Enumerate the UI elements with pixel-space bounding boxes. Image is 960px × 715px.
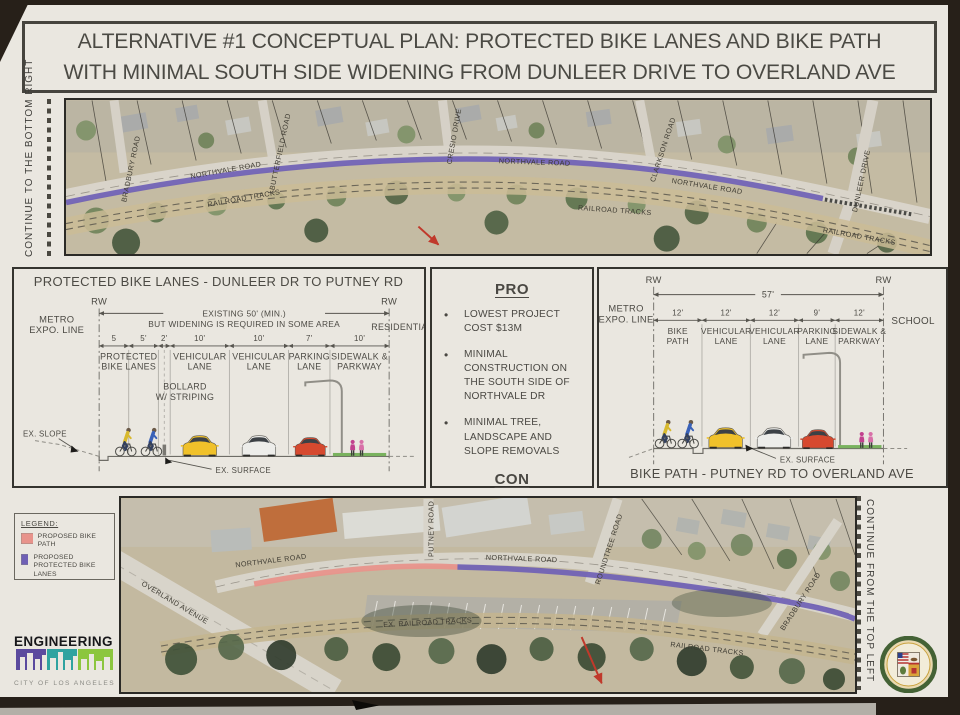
- svg-text:VEHICULAR: VEHICULAR: [749, 326, 800, 336]
- legend-label: PROPOSED BIKE PATH: [38, 533, 108, 549]
- section-title: BIKE PATH - PUTNEY RD TO OVERLAND AVE: [630, 466, 914, 481]
- svg-text:10': 10': [253, 334, 264, 343]
- ground-line: [654, 449, 884, 454]
- legend-swatch-purple: [21, 554, 28, 565]
- svg-text:LANE: LANE: [805, 336, 828, 346]
- svg-text:5: 5: [112, 334, 117, 343]
- top-aerial-map: BRADBURY ROAD NORTHVALE ROAD BUTTERFIELD…: [64, 98, 932, 256]
- car-yellow: [181, 436, 219, 457]
- cyclist-blue: [678, 420, 699, 448]
- pro-list: LOWEST PROJECT COST $13M MINIMAL CONSTRU…: [432, 308, 592, 459]
- pro-item: LOWEST PROJECT COST $13M: [464, 308, 584, 336]
- legend-label: PROPOSED PROTECTED BIKE LANES: [33, 554, 108, 578]
- svg-text:PROTECTED: PROTECTED: [100, 352, 157, 362]
- bollard-note-2: W/ STRIPING: [156, 392, 214, 402]
- span-note-1: EXISTING 50' (MIN.): [202, 308, 286, 318]
- context-right: SCHOOL: [891, 316, 935, 327]
- continue-bottom-right-label: CONTINUE TO THE BOTTOM RIGHT: [24, 99, 35, 257]
- left-cross-section-svg: PROTECTED BIKE LANES - DUNLEER DR TO PUT…: [14, 269, 424, 486]
- svg-text:LANE: LANE: [188, 362, 212, 372]
- context-left-2: EXPO. LINE: [599, 314, 654, 324]
- svg-text:LANE: LANE: [763, 336, 786, 346]
- match-line-left: [47, 99, 51, 256]
- legend-item-protected-lanes: PROPOSED PROTECTED BIKE LANES: [21, 554, 108, 578]
- section-protected-bike-lanes: PROTECTED BIKE LANES - DUNLEER DR TO PUT…: [12, 267, 426, 488]
- top-aerial-map-svg: BRADBURY ROAD NORTHVALE ROAD BUTTERFIELD…: [66, 100, 930, 254]
- match-line-right: [857, 496, 861, 690]
- svg-text:VEHICULAR: VEHICULAR: [701, 326, 752, 336]
- ground-line: [99, 456, 389, 460]
- dimension-labels: 12'12' 12'9' 12': [672, 308, 865, 317]
- cyclist-yellow: [655, 420, 676, 448]
- legend-item-bike-path: PROPOSED BIKE PATH: [21, 533, 108, 549]
- legend-swatch-pink: [21, 533, 33, 544]
- svg-text:LANE: LANE: [247, 362, 271, 372]
- road-label: PUTNEY ROAD: [426, 501, 435, 557]
- photo-of-poster: { "poster": { "title_line1": "ALTERNATIV…: [0, 0, 960, 715]
- context-right: RESIDENTIAL: [371, 322, 424, 332]
- lane-labels: BIKEPATH VEHICULARLANE VEHICULARLANE PAR…: [667, 326, 887, 346]
- svg-text:PARKING: PARKING: [797, 326, 836, 336]
- bollard: [163, 445, 167, 456]
- car-red: [800, 430, 835, 449]
- svg-text:2': 2': [161, 334, 168, 343]
- rw-left: RW: [91, 297, 107, 307]
- ex-slope-label: EX. SLOPE: [23, 430, 67, 439]
- engineering-logo: ENGINEERING CITY OF LOS ANGELES: [14, 634, 124, 687]
- svg-text:VEHICULAR: VEHICULAR: [173, 352, 226, 362]
- svg-text:5': 5': [140, 334, 147, 343]
- right-cross-section-svg: RW RW METRO EXPO. LINE SCHOOL 57' 12'12'…: [599, 269, 946, 486]
- svg-text:PARKWAY: PARKWAY: [838, 336, 881, 346]
- rw-right: RW: [381, 297, 397, 307]
- context-left-1: METRO: [39, 314, 74, 324]
- skyline-graphic: [14, 649, 116, 674]
- city-of-la-text: CITY OF LOS ANGELES: [14, 680, 124, 687]
- continue-top-left-label: CONTINUE FROM THE TOP LEFT: [864, 499, 875, 699]
- svg-text:9': 9': [814, 308, 821, 317]
- svg-text:10': 10': [354, 334, 365, 343]
- svg-text:PATH: PATH: [667, 336, 689, 346]
- context-left-2: EXPO. LINE: [29, 325, 84, 335]
- svg-text:BIKE: BIKE: [668, 326, 688, 336]
- legend-heading: LEGEND:: [21, 519, 108, 528]
- svg-text:SIDEWALK &: SIDEWALK &: [832, 326, 886, 336]
- parkway-grass: [333, 453, 386, 456]
- rw-right: RW: [875, 275, 891, 285]
- svg-text:PARKING: PARKING: [289, 352, 330, 362]
- car-white: [240, 436, 278, 457]
- total-width-label: 57': [762, 290, 774, 300]
- title-line-2: WITH MINIMAL SOUTH SIDE WIDENING FROM DU…: [32, 57, 927, 88]
- section-title: PROTECTED BIKE LANES - DUNLEER DR TO PUT…: [34, 274, 403, 289]
- rw-left: RW: [646, 275, 662, 285]
- svg-text:BIKE LANES: BIKE LANES: [101, 362, 156, 372]
- span-note-2: BUT WIDENING IS REQUIRED IN SOME AREA: [148, 319, 340, 329]
- svg-text:PARKWAY: PARKWAY: [337, 362, 382, 372]
- bottom-aerial-map-svg: OVERLAND AVENUE NORTHVALE ROAD PUTNEY RO…: [121, 498, 855, 692]
- svg-text:7': 7': [306, 334, 313, 343]
- car-yellow: [707, 428, 745, 449]
- title-line-1: ALTERNATIVE #1 CONCEPTUAL PLAN: PROTECTE…: [32, 26, 927, 57]
- title-box: ALTERNATIVE #1 CONCEPTUAL PLAN: PROTECTE…: [22, 21, 937, 93]
- parkway-grass: [838, 445, 881, 448]
- next-sheet-edge: [0, 702, 876, 715]
- svg-text:LANE: LANE: [715, 336, 738, 346]
- con-heading: CON: [432, 471, 592, 488]
- dimension-labels: 55' 2'10' 10'7' 10': [112, 334, 366, 343]
- ex-surface-label: EX. SURFACE: [216, 466, 271, 475]
- legend-box: LEGEND: PROPOSED BIKE PATH PROPOSED PROT…: [14, 513, 115, 580]
- pro-heading: PRO: [432, 281, 592, 298]
- seal-shield: [898, 653, 920, 677]
- svg-text:SIDEWALK &: SIDEWALK &: [331, 352, 388, 362]
- ex-surface-label: EX. SURFACE: [780, 455, 835, 464]
- svg-text:LANE: LANE: [297, 362, 321, 372]
- pro-item: MINIMAL TREE, LANDSCAPE AND SLOPE REMOVA…: [464, 416, 584, 458]
- svg-text:12': 12': [854, 308, 865, 317]
- pro-item: MINIMAL CONSTRUCTION ON THE SOUTH SIDE O…: [464, 348, 584, 404]
- bottom-aerial-map: OVERLAND AVENUE NORTHVALE ROAD PUTNEY RO…: [119, 496, 857, 694]
- svg-text:12': 12': [672, 308, 683, 317]
- la-city-seal: [880, 636, 937, 693]
- pros-cons-panel: PRO LOWEST PROJECT COST $13M MINIMAL CON…: [430, 267, 594, 488]
- car-red: [293, 438, 327, 457]
- context-left-1: METRO: [608, 303, 643, 313]
- car-white: [755, 428, 793, 449]
- cyclist-yellow: [116, 428, 137, 456]
- lane-labels: PROTECTEDBIKE LANES VEHICULARLANE VEHICU…: [100, 352, 388, 372]
- engineering-wordmark: ENGINEERING: [14, 634, 124, 649]
- svg-text:10': 10': [194, 334, 205, 343]
- bollard-note-1: BOLLARD: [163, 381, 206, 391]
- poster-sheet: ALTERNATIVE #1 CONCEPTUAL PLAN: PROTECTE…: [0, 5, 948, 697]
- svg-text:12': 12': [769, 308, 780, 317]
- svg-text:VEHICULAR: VEHICULAR: [232, 352, 285, 362]
- section-bike-path: RW RW METRO EXPO. LINE SCHOOL 57' 12'12'…: [597, 267, 948, 488]
- svg-text:12': 12': [721, 308, 732, 317]
